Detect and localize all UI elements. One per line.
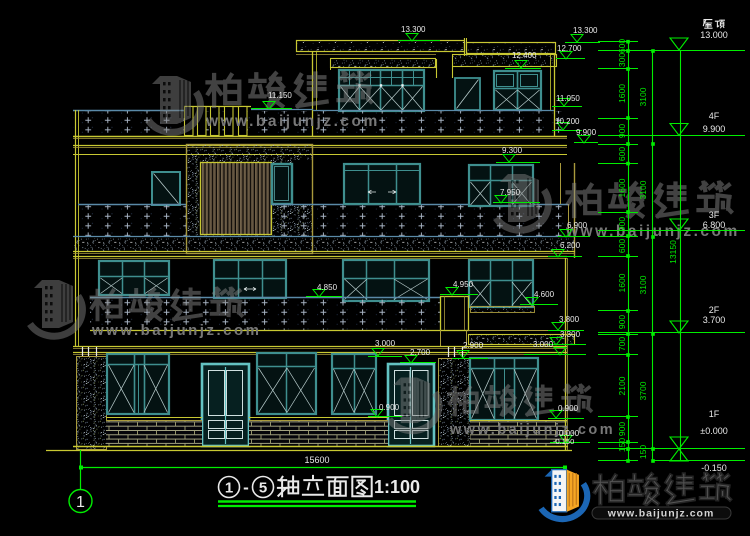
svg-text:1: 1 bbox=[225, 480, 233, 497]
svg-text:3.000: 3.000 bbox=[533, 340, 554, 349]
svg-text:3100: 3100 bbox=[638, 180, 648, 199]
svg-text:12.700: 12.700 bbox=[557, 44, 582, 53]
svg-text:300: 300 bbox=[617, 53, 627, 67]
svg-text:2100: 2100 bbox=[617, 376, 627, 395]
svg-text:10.200: 10.200 bbox=[555, 117, 580, 126]
svg-text:13150: 13150 bbox=[668, 240, 678, 264]
svg-text:1600: 1600 bbox=[617, 178, 627, 197]
svg-text:1600: 1600 bbox=[617, 84, 627, 103]
svg-text:3F: 3F bbox=[709, 210, 720, 220]
svg-text:3100: 3100 bbox=[638, 275, 648, 294]
svg-text:900: 900 bbox=[617, 422, 627, 436]
svg-text:5: 5 bbox=[259, 480, 267, 497]
svg-text:1600: 1600 bbox=[617, 273, 627, 292]
svg-text:1: 1 bbox=[76, 494, 85, 511]
svg-text:www.baijunjz.com: www.baijunjz.com bbox=[607, 508, 715, 520]
svg-text:700: 700 bbox=[617, 337, 627, 351]
svg-text:9.300: 9.300 bbox=[502, 146, 523, 155]
svg-text:-0.150: -0.150 bbox=[701, 463, 727, 473]
svg-text:12.400: 12.400 bbox=[512, 51, 537, 60]
svg-text:13.300: 13.300 bbox=[573, 26, 598, 35]
svg-text:-: - bbox=[243, 478, 249, 497]
svg-text:2.700: 2.700 bbox=[410, 348, 431, 357]
svg-text:1F: 1F bbox=[709, 409, 720, 419]
svg-text:600: 600 bbox=[617, 239, 627, 253]
svg-text:0.900: 0.900 bbox=[379, 403, 400, 412]
svg-text:3.700: 3.700 bbox=[703, 315, 726, 325]
svg-text:6.200: 6.200 bbox=[560, 241, 581, 250]
svg-text:3.800: 3.800 bbox=[559, 315, 580, 324]
svg-text:4.950: 4.950 bbox=[453, 280, 474, 289]
svg-text:6.900: 6.900 bbox=[567, 221, 588, 230]
svg-text:1:100: 1:100 bbox=[374, 477, 420, 497]
svg-text:www.baijunjz.com: www.baijunjz.com bbox=[449, 422, 615, 438]
svg-text:900: 900 bbox=[617, 217, 627, 231]
svg-text:www.baijunjz.com: www.baijunjz.com bbox=[205, 113, 380, 130]
svg-text:4F: 4F bbox=[709, 111, 720, 121]
svg-text:-0.150: -0.150 bbox=[553, 437, 574, 446]
svg-text:13.300: 13.300 bbox=[401, 25, 426, 34]
svg-text:2.900: 2.900 bbox=[463, 341, 484, 350]
svg-text:900: 900 bbox=[617, 315, 627, 329]
svg-text:150: 150 bbox=[617, 438, 627, 452]
svg-text:7.950: 7.950 bbox=[500, 188, 521, 197]
svg-text:3.000: 3.000 bbox=[375, 339, 396, 348]
svg-text:9.900: 9.900 bbox=[576, 128, 597, 137]
svg-text:600: 600 bbox=[617, 147, 627, 161]
svg-text:2F: 2F bbox=[709, 305, 720, 315]
svg-text:3700: 3700 bbox=[638, 381, 648, 400]
svg-text:0.900: 0.900 bbox=[558, 404, 579, 413]
svg-text:±0.000: ±0.000 bbox=[700, 426, 727, 436]
svg-text:www.baijunjz.com: www.baijunjz.com bbox=[91, 322, 261, 339]
svg-text:11.050: 11.050 bbox=[556, 94, 580, 103]
svg-text:9.900: 9.900 bbox=[703, 124, 726, 134]
svg-text:4.600: 4.600 bbox=[534, 290, 555, 299]
svg-text:15600: 15600 bbox=[304, 455, 329, 465]
svg-text:3.300: 3.300 bbox=[560, 330, 581, 339]
svg-text:13.000: 13.000 bbox=[700, 30, 728, 40]
svg-text:6.800: 6.800 bbox=[703, 220, 726, 230]
svg-text:4.850: 4.850 bbox=[317, 283, 338, 292]
svg-text:3100: 3100 bbox=[638, 87, 648, 106]
svg-text:11.150: 11.150 bbox=[268, 91, 292, 100]
svg-text:150: 150 bbox=[638, 445, 648, 459]
